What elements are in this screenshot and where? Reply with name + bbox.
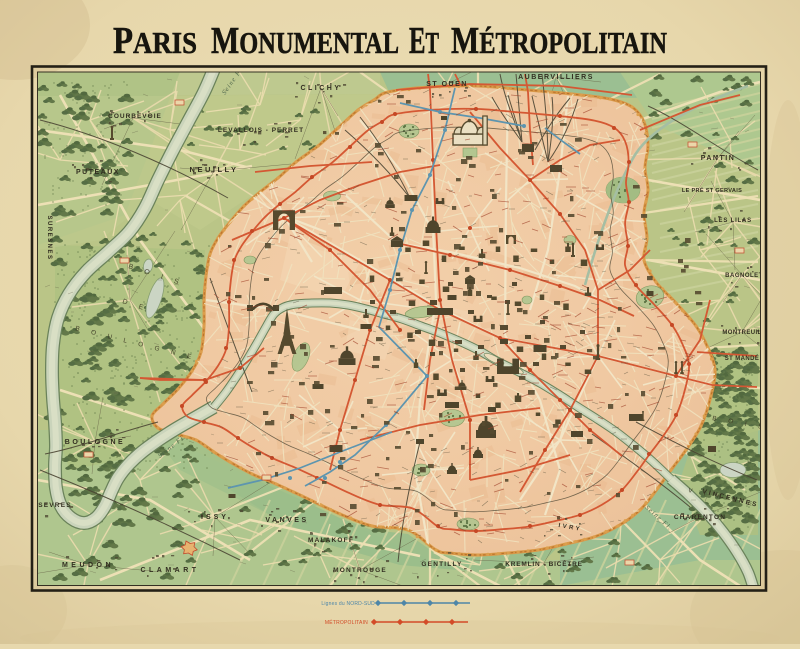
svg-text:MONUMENTAL: MONUMENTAL: [211, 20, 399, 62]
svg-text:MÉTROPOLITAIN: MÉTROPOLITAIN: [325, 619, 368, 626]
svg-text:PARIS: PARIS: [113, 20, 197, 62]
svg-text:Lignes du NORD-SUD: Lignes du NORD-SUD: [321, 601, 375, 607]
svg-text:MÉTROPOLITAIN: MÉTROPOLITAIN: [451, 20, 667, 62]
svg-text:ET: ET: [409, 20, 439, 62]
